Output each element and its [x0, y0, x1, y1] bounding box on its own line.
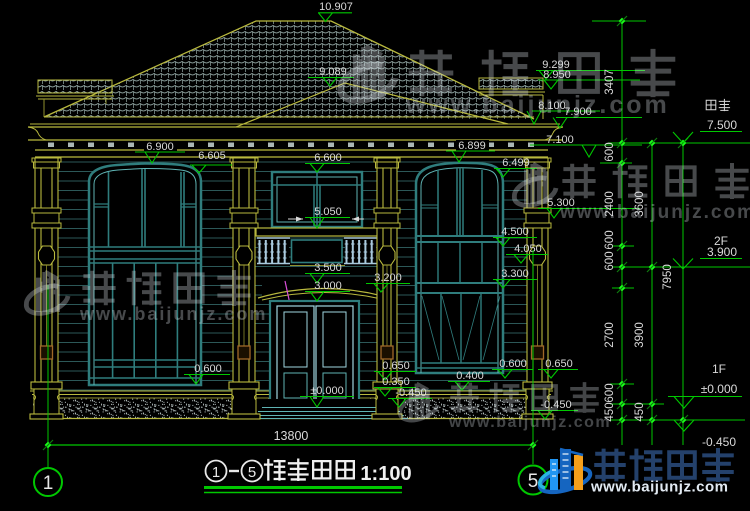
svg-text:6.899: 6.899 [458, 140, 486, 152]
svg-text:600: 600 [604, 251, 616, 270]
svg-text:4.050: 4.050 [514, 243, 542, 255]
svg-text:5: 5 [248, 464, 256, 481]
svg-text:www.baijunjz.com: www.baijunjz.com [79, 304, 267, 324]
svg-text:5: 5 [528, 471, 539, 492]
svg-text:1:100: 1:100 [360, 463, 411, 485]
svg-text:0.600: 0.600 [499, 358, 527, 370]
svg-text:7.500: 7.500 [707, 118, 737, 132]
svg-text:www.baijunjz.com: www.baijunjz.com [590, 479, 728, 496]
svg-text:600: 600 [604, 383, 616, 402]
svg-text:www.baijunjz.com: www.baijunjz.com [405, 91, 670, 119]
svg-text:600: 600 [604, 142, 616, 161]
svg-text:7.100: 7.100 [546, 134, 574, 146]
svg-text:7950: 7950 [662, 264, 674, 290]
svg-text:3.900: 3.900 [707, 245, 737, 259]
svg-text:3900: 3900 [634, 322, 646, 348]
svg-text:450: 450 [634, 402, 646, 421]
svg-text:6.605: 6.605 [198, 150, 226, 162]
svg-text:5.050: 5.050 [314, 206, 342, 218]
svg-text:10.907: 10.907 [319, 1, 353, 13]
svg-text:±0.000: ±0.000 [310, 385, 344, 397]
svg-text:0.400: 0.400 [456, 370, 484, 382]
svg-text:3.500: 3.500 [314, 262, 342, 274]
svg-text:600: 600 [604, 230, 616, 249]
svg-text:6.600: 6.600 [314, 152, 342, 164]
svg-text:±0.000: ±0.000 [701, 382, 738, 396]
svg-text:0.600: 0.600 [194, 363, 222, 375]
svg-text:6.900: 6.900 [146, 141, 174, 153]
svg-text:0.650: 0.650 [545, 358, 573, 370]
svg-text:13800: 13800 [274, 429, 309, 443]
svg-text:1: 1 [212, 464, 220, 481]
svg-text:www.baijunjz.com: www.baijunjz.com [559, 202, 750, 223]
svg-text:1F: 1F [712, 362, 726, 376]
svg-text:3.200: 3.200 [374, 272, 402, 284]
svg-text:3.300: 3.300 [501, 268, 529, 280]
svg-text:0.650: 0.650 [382, 360, 410, 372]
svg-text:3.000: 3.000 [314, 280, 342, 292]
svg-text:1: 1 [43, 473, 54, 494]
svg-text:2700: 2700 [604, 322, 616, 348]
svg-text:www.baijunjz.com: www.baijunjz.com [448, 414, 611, 431]
svg-text:-0.450: -0.450 [702, 435, 736, 449]
svg-text:4.500: 4.500 [501, 226, 529, 238]
svg-text:6.499: 6.499 [502, 157, 530, 169]
